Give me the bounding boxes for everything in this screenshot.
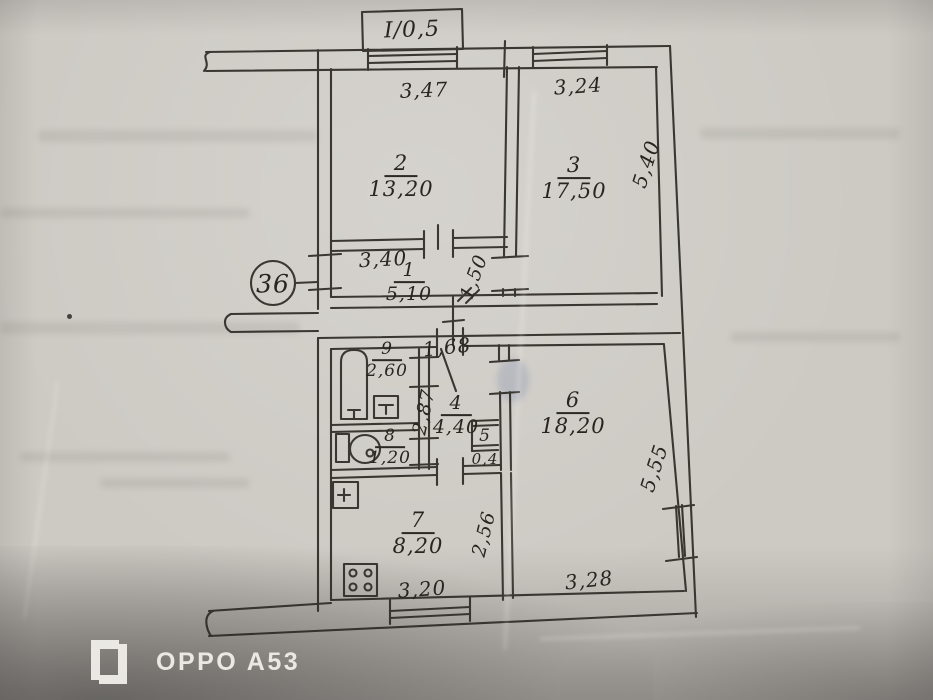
room-label-9: 9 2,60 [366, 341, 408, 381]
room-number: 2 [385, 153, 417, 177]
room-area: 5,10 [386, 284, 432, 305]
room-area: 8,20 [393, 535, 444, 558]
room-label-7: 7 8,20 [393, 510, 444, 558]
dim-room2-width: 3,47 [399, 77, 448, 103]
room-number: 3 [558, 155, 590, 179]
dim-room7-width: 3,20 [397, 575, 447, 602]
dim-room4-width: 1,68 [422, 333, 473, 362]
room-label-3: 3 17,50 [541, 155, 606, 203]
room-label-1: 1 5,10 [386, 261, 432, 305]
room-number: 8 [375, 428, 405, 448]
room-label-8: 8 1,20 [369, 428, 411, 468]
room-area: 13,20 [368, 178, 433, 201]
room-area: 2,60 [366, 362, 408, 381]
balcony-label: I/0,5 [384, 17, 441, 44]
room-area: 17,50 [541, 180, 606, 203]
dim-room3-width: 3,24 [553, 72, 603, 99]
floor-plan-photo: I/0,5 3,47 3,24 5,40 2 13,20 3 17,50 3,4… [0, 0, 933, 700]
room5-area: 0,4 [472, 450, 499, 468]
room-area: 18,20 [540, 415, 605, 438]
room-number: 4 [440, 394, 471, 416]
stove-icon [344, 564, 377, 596]
dim-room6-width: 3,28 [564, 566, 615, 595]
room-area: 4,40 [433, 417, 479, 438]
oppo-brackets-logo-icon [86, 638, 132, 686]
apartment-number-badge: 36 [256, 270, 290, 299]
room-number: 6 [557, 390, 589, 414]
kitchen-sink-icon [333, 482, 358, 508]
room-number: 7 [402, 510, 434, 534]
watermark-device-label: OPPO A53 [156, 648, 300, 677]
room-label-4: 4 4,40 [433, 394, 479, 438]
bathtub-icon [341, 350, 367, 419]
room-label-2: 2 13,20 [368, 153, 433, 201]
watermark: OPPO A53 [86, 638, 300, 686]
room-number: 1 [393, 261, 424, 283]
room-number: 9 [372, 341, 402, 361]
washbasin-icon [374, 396, 398, 418]
room-label-6: 6 18,20 [540, 390, 605, 438]
room-area: 1,20 [369, 449, 411, 468]
room5-number: 5 [479, 426, 491, 446]
